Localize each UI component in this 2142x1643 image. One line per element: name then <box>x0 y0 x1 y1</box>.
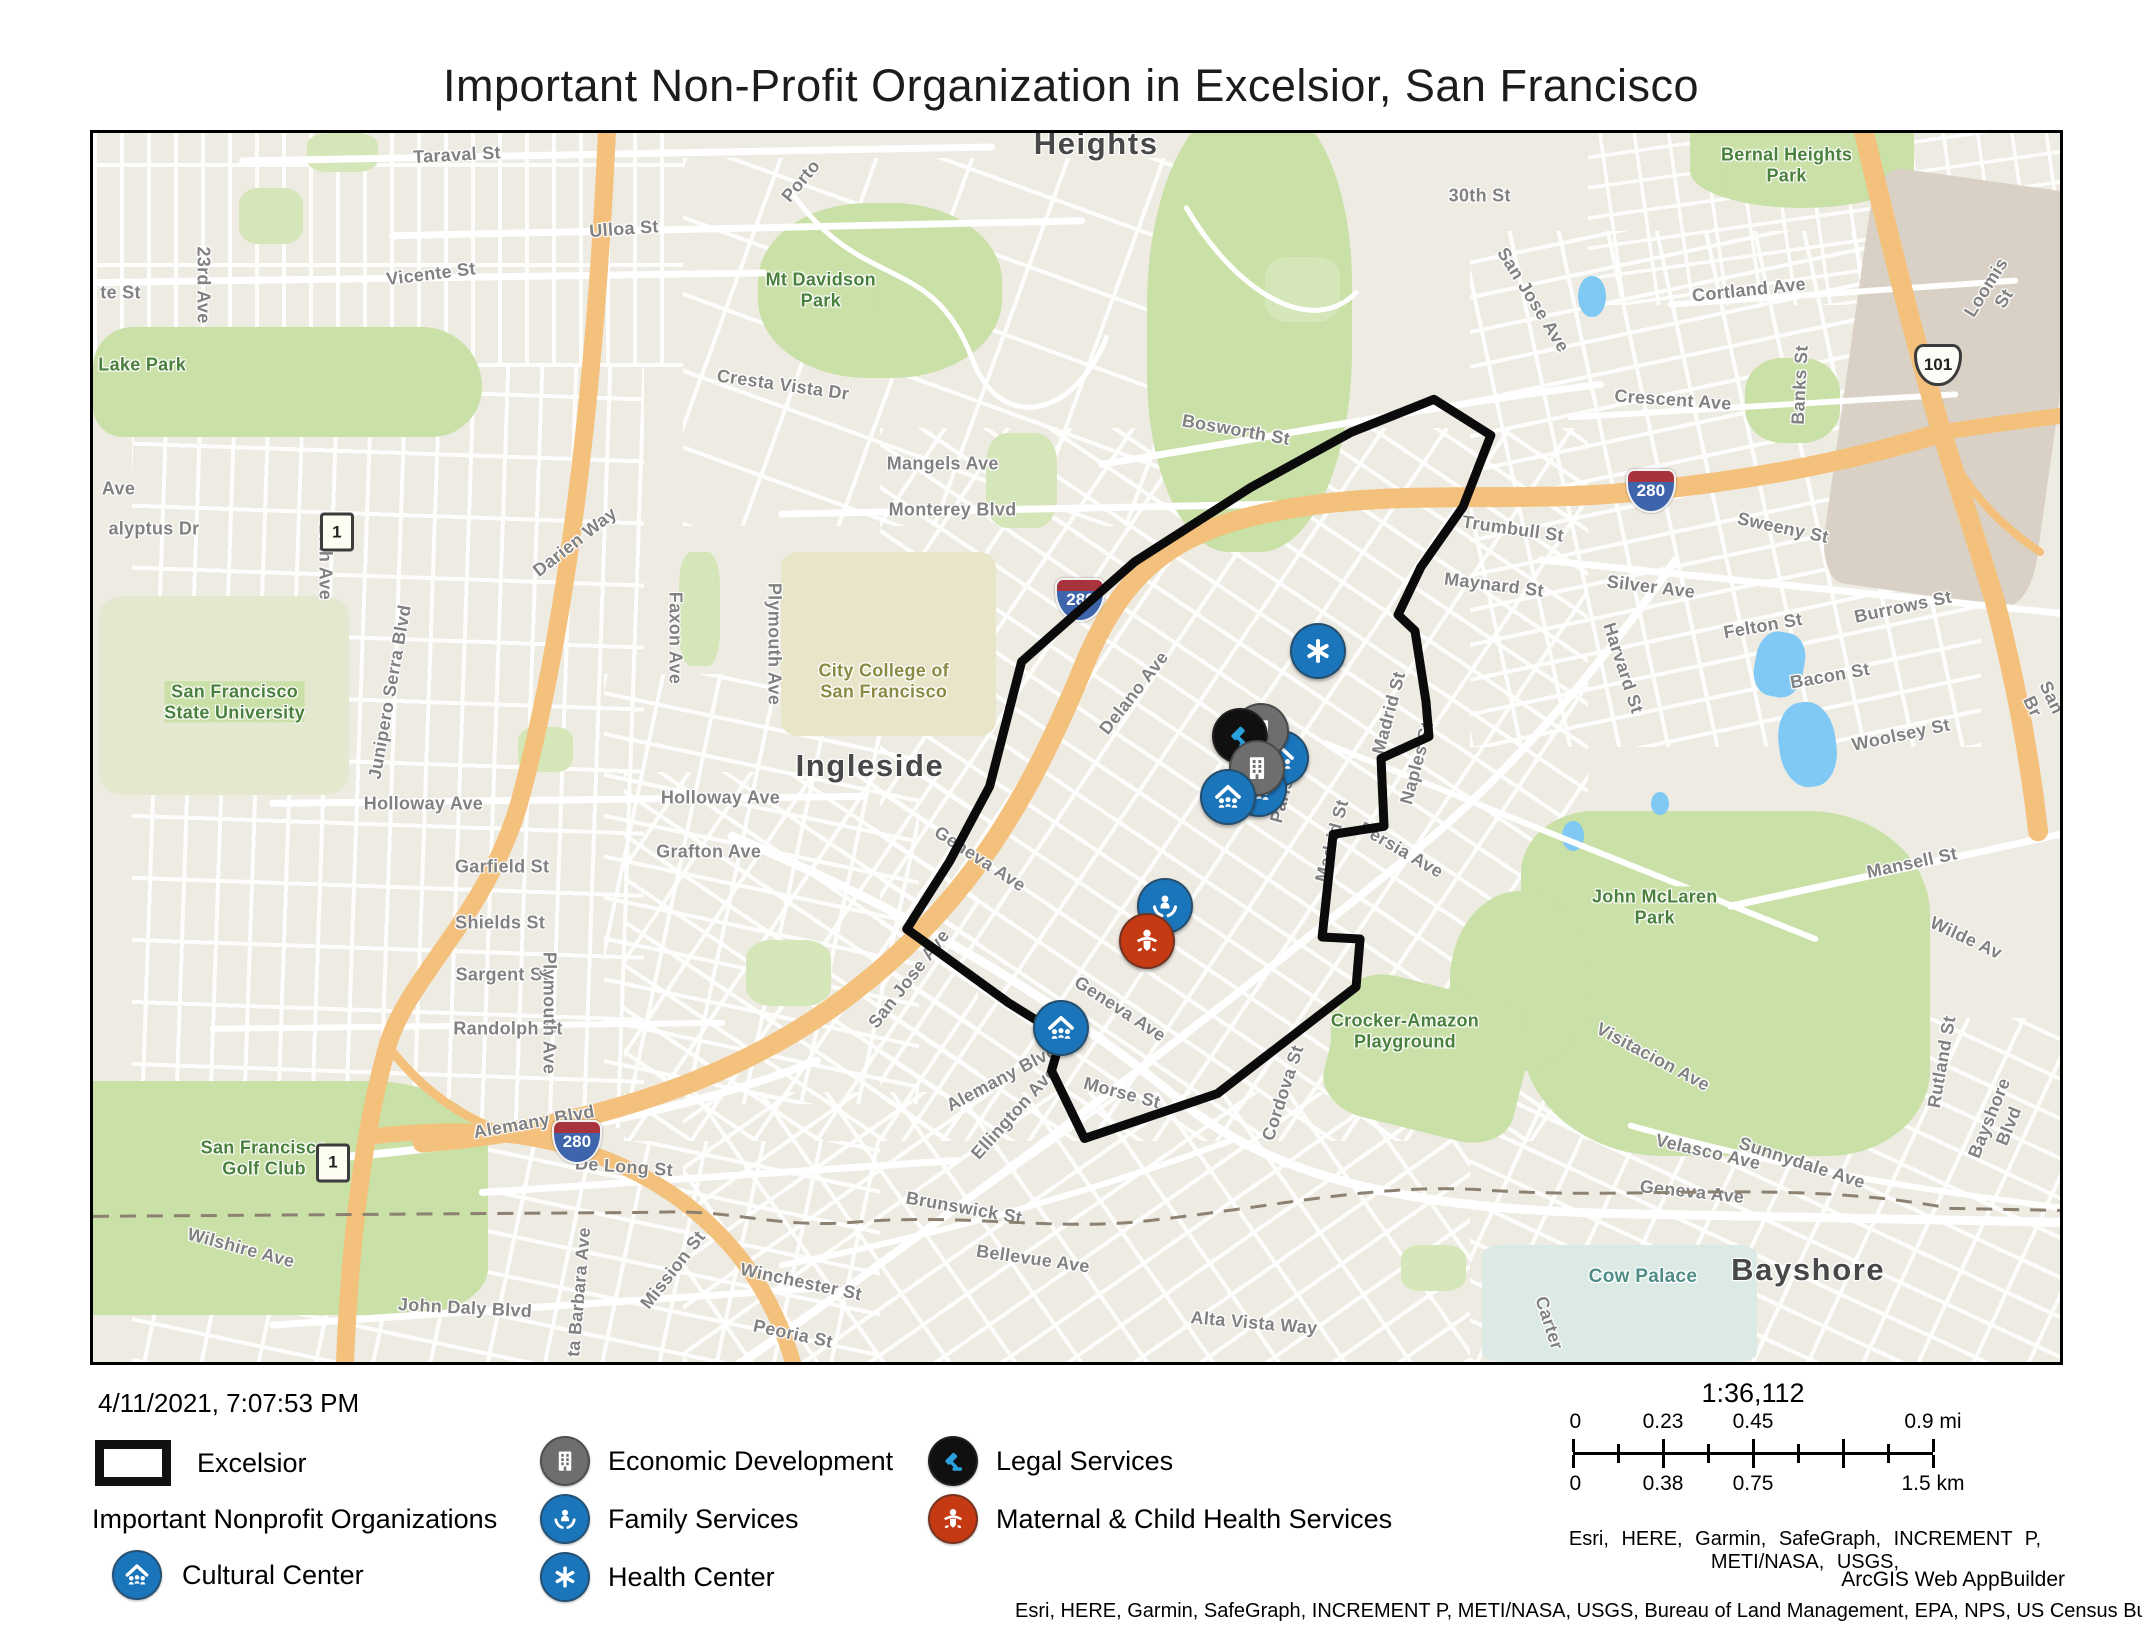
legend-item-economic-development: Economic Development <box>540 1437 893 1485</box>
rect <box>1256 774 1259 779</box>
path <box>1064 1036 1070 1039</box>
legend-label: Legal Services <box>996 1446 1173 1477</box>
svg <box>938 1446 968 1476</box>
path <box>1152 948 1156 951</box>
sb-tick <box>1842 1439 1845 1452</box>
path <box>1285 766 1291 769</box>
page-title: Important Non-Profit Organization in Exc… <box>0 60 2142 112</box>
legend-label: Health Center <box>608 1562 775 1593</box>
map-marker-cultural-center[interactable] <box>1033 1000 1089 1056</box>
cultural-center-icon <box>112 1550 162 1600</box>
rect <box>561 1454 564 1457</box>
rect <box>561 1463 564 1466</box>
legend-item-health-center: Health Center <box>540 1553 893 1601</box>
path <box>129 1582 134 1584</box>
sb-tick <box>1932 1455 1935 1468</box>
scalebar-ruler <box>1573 1452 1933 1455</box>
legal-services-icon <box>928 1436 978 1486</box>
sb-tick <box>1617 1455 1620 1463</box>
span: 0.9 mi <box>1904 1410 1961 1434</box>
path <box>1138 948 1142 951</box>
circle <box>1315 648 1322 655</box>
span: 0 <box>1569 1410 1581 1434</box>
circle <box>1232 799 1237 804</box>
path <box>945 1525 949 1528</box>
attribution-app: ArcGIS Web AppBuilder <box>1545 1568 2065 1592</box>
sb-tick <box>1842 1455 1845 1468</box>
span: 0 <box>1569 1472 1581 1496</box>
map-inner: HeightsInglesideBayshoreBernal Heights P… <box>93 133 2060 1362</box>
path <box>1257 796 1263 799</box>
svg <box>1130 924 1164 958</box>
path <box>140 1582 145 1585</box>
circle <box>1285 759 1290 764</box>
circle <box>950 1509 957 1516</box>
legend-item-cultural-center: Cultural Center <box>112 1550 364 1600</box>
span: 0.45 <box>1733 1410 1774 1434</box>
rect <box>566 1458 569 1461</box>
rect <box>561 1458 564 1461</box>
path <box>127 1566 147 1575</box>
svg <box>550 1504 580 1534</box>
maternal-child-health-icon <box>928 1494 978 1544</box>
g <box>129 1575 146 1584</box>
span: 0.38 <box>1643 1472 1684 1496</box>
circle <box>1058 1029 1063 1034</box>
sb-tick <box>1707 1455 1710 1463</box>
circle <box>1052 1030 1057 1035</box>
sb-tick <box>1707 1444 1710 1452</box>
rect <box>1259 760 1262 763</box>
span: 0.23 <box>1643 1410 1684 1434</box>
scale-ratio: 1:36,112 <box>1573 1378 1933 1409</box>
path <box>1219 805 1225 808</box>
svg <box>1301 634 1335 668</box>
path <box>1058 1035 1064 1038</box>
legend-label: Maternal & Child Health Services <box>996 1504 1392 1535</box>
circle <box>562 1510 568 1516</box>
path <box>958 1525 962 1528</box>
circle <box>1225 798 1230 803</box>
sb-tick <box>1932 1439 1935 1452</box>
legend-label: Economic Development <box>608 1446 893 1477</box>
export-page: Important Non-Profit Organization in Exc… <box>0 0 2142 1643</box>
svg <box>122 1560 152 1590</box>
rect <box>566 1463 569 1466</box>
legend-label: Cultural Center <box>182 1560 364 1591</box>
export-timestamp: 4/11/2021, 7:07:53 PM <box>98 1388 359 1419</box>
rect <box>566 1454 569 1457</box>
path <box>1161 902 1170 908</box>
legend-item-maternal-child-health: Maternal & Child Health Services <box>928 1495 1392 1543</box>
legend-column-2: Economic Development Family Services Hea… <box>540 1437 893 1601</box>
sb-tick <box>1752 1455 1755 1468</box>
map-marker-maternal-child-health[interactable] <box>1119 913 1175 969</box>
sb-tick <box>1797 1444 1800 1452</box>
rect <box>1253 765 1256 768</box>
sb-tick <box>1662 1439 1665 1452</box>
legend-item-family-services: Family Services <box>540 1495 893 1543</box>
scalebar-miles-labels: 00.230.450.9 mi <box>1573 1410 1933 1434</box>
rect <box>953 1467 963 1471</box>
svg <box>550 1446 580 1476</box>
sb-tick <box>1887 1455 1890 1463</box>
g <box>1051 1029 1070 1040</box>
rect <box>564 1467 567 1471</box>
sb-tick <box>1572 1439 1575 1452</box>
rect <box>1253 770 1256 773</box>
sb-tick <box>1662 1455 1665 1468</box>
rect <box>1259 765 1262 768</box>
circle <box>1219 799 1224 804</box>
circle <box>141 1576 146 1581</box>
circle <box>129 1576 134 1581</box>
svg <box>550 1562 580 1592</box>
circle <box>1065 1030 1070 1035</box>
rect <box>1259 770 1262 773</box>
path <box>561 1516 569 1522</box>
path <box>1051 1036 1057 1039</box>
circle <box>1162 895 1169 902</box>
map-canvas[interactable]: HeightsInglesideBayshoreBernal Heights P… <box>90 130 2063 1365</box>
sb-tick <box>1797 1455 1800 1463</box>
scalebar-km-labels: 00.380.751.5 km <box>1573 1472 1933 1496</box>
legend-label: Family Services <box>608 1504 799 1535</box>
attribution-full-line: Esri, HERE, Garmin, SafeGraph, INCREMENT… <box>1015 1600 2142 1623</box>
path <box>135 1581 140 1584</box>
span: 1.5 km <box>1901 1472 1964 1496</box>
sb-tick <box>1617 1444 1620 1452</box>
path <box>1232 805 1238 808</box>
svg <box>1044 1011 1078 1045</box>
svg <box>1211 780 1245 814</box>
circle <box>562 1574 568 1580</box>
legend-label: Excelsior <box>197 1448 307 1479</box>
map-marker-cultural-center[interactable] <box>1200 769 1256 825</box>
legend-item-legal-services: Legal Services <box>928 1437 1392 1485</box>
sb-tick <box>1887 1444 1890 1452</box>
circle <box>1144 930 1151 937</box>
legend-group-title: Important Nonprofit Organizations <box>92 1504 497 1535</box>
health-center-icon <box>540 1552 590 1602</box>
legend-column-3: Legal Services Maternal & Child Health S… <box>928 1437 1392 1543</box>
family-services-icon <box>540 1494 590 1544</box>
path <box>1050 1018 1072 1028</box>
rect <box>1253 760 1256 763</box>
sb-tick <box>1752 1439 1755 1452</box>
sb-tick <box>1572 1455 1575 1468</box>
economic-development-icon <box>540 1436 590 1486</box>
legend-item-excelsior: Excelsior <box>95 1440 307 1486</box>
svg <box>938 1504 968 1534</box>
map-marker-health-center[interactable] <box>1290 623 1346 679</box>
excelsior-boundary-swatch <box>95 1440 171 1486</box>
path <box>1217 787 1239 797</box>
g <box>1219 798 1238 809</box>
span: 0.75 <box>1733 1472 1774 1496</box>
map-marker-layer <box>93 133 2060 1362</box>
path <box>1263 797 1269 800</box>
path <box>1144 941 1151 951</box>
circle <box>135 1575 140 1580</box>
path <box>1225 804 1231 807</box>
path <box>950 1519 956 1528</box>
